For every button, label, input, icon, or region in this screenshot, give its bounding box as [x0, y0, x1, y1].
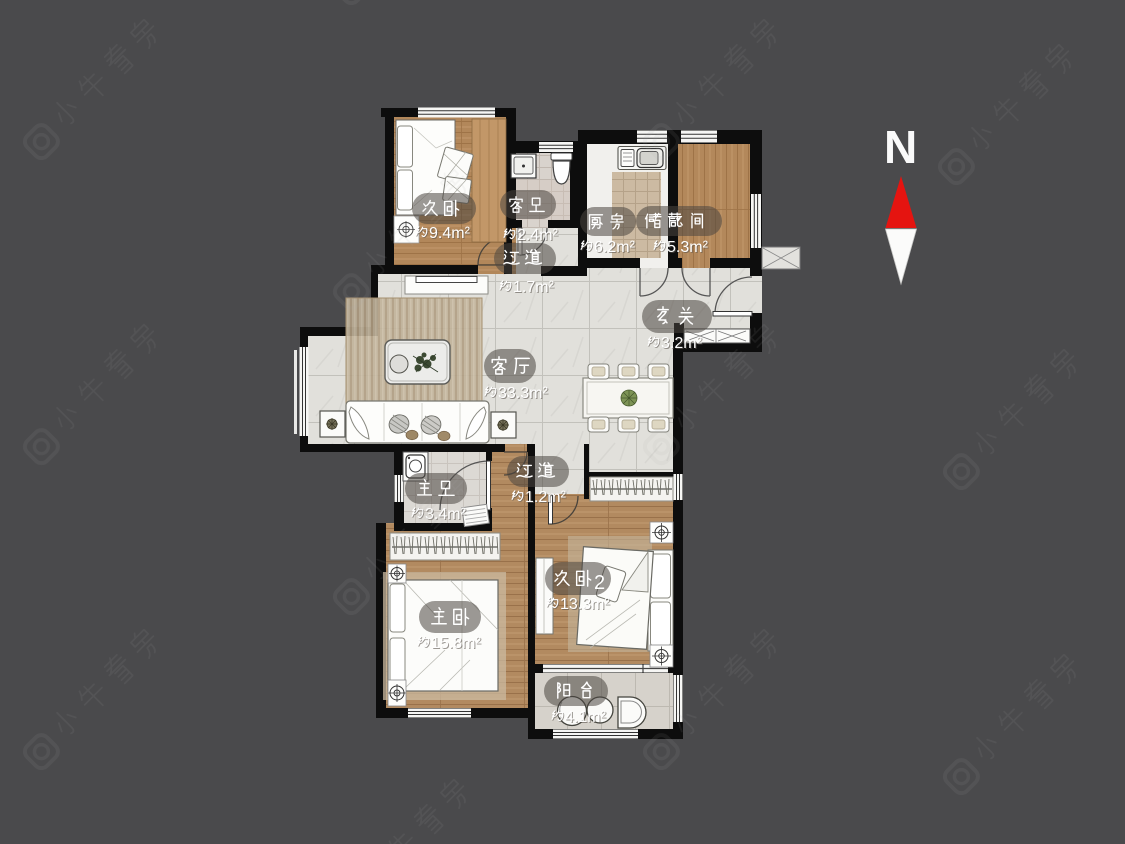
svg-text:9.4m²: 9.4m²	[429, 225, 471, 242]
svg-text:5.3m²: 5.3m²	[667, 239, 709, 256]
svg-text:13.3m²: 13.3m²	[560, 596, 610, 613]
svg-text:15.8m²: 15.8m²	[431, 635, 481, 652]
svg-text:33.3m²: 33.3m²	[498, 385, 548, 402]
svg-text:N: N	[884, 121, 917, 173]
svg-text:2.4m²: 2.4m²	[517, 227, 559, 244]
svg-text:2: 2	[594, 572, 605, 594]
svg-text:4.1m²: 4.1m²	[565, 709, 607, 726]
svg-text:1.7m²: 1.7m²	[513, 279, 555, 296]
svg-text:6.2m²: 6.2m²	[594, 239, 636, 256]
svg-text:1.2m²: 1.2m²	[525, 489, 567, 506]
svg-text:3.2m²: 3.2m²	[661, 335, 703, 352]
